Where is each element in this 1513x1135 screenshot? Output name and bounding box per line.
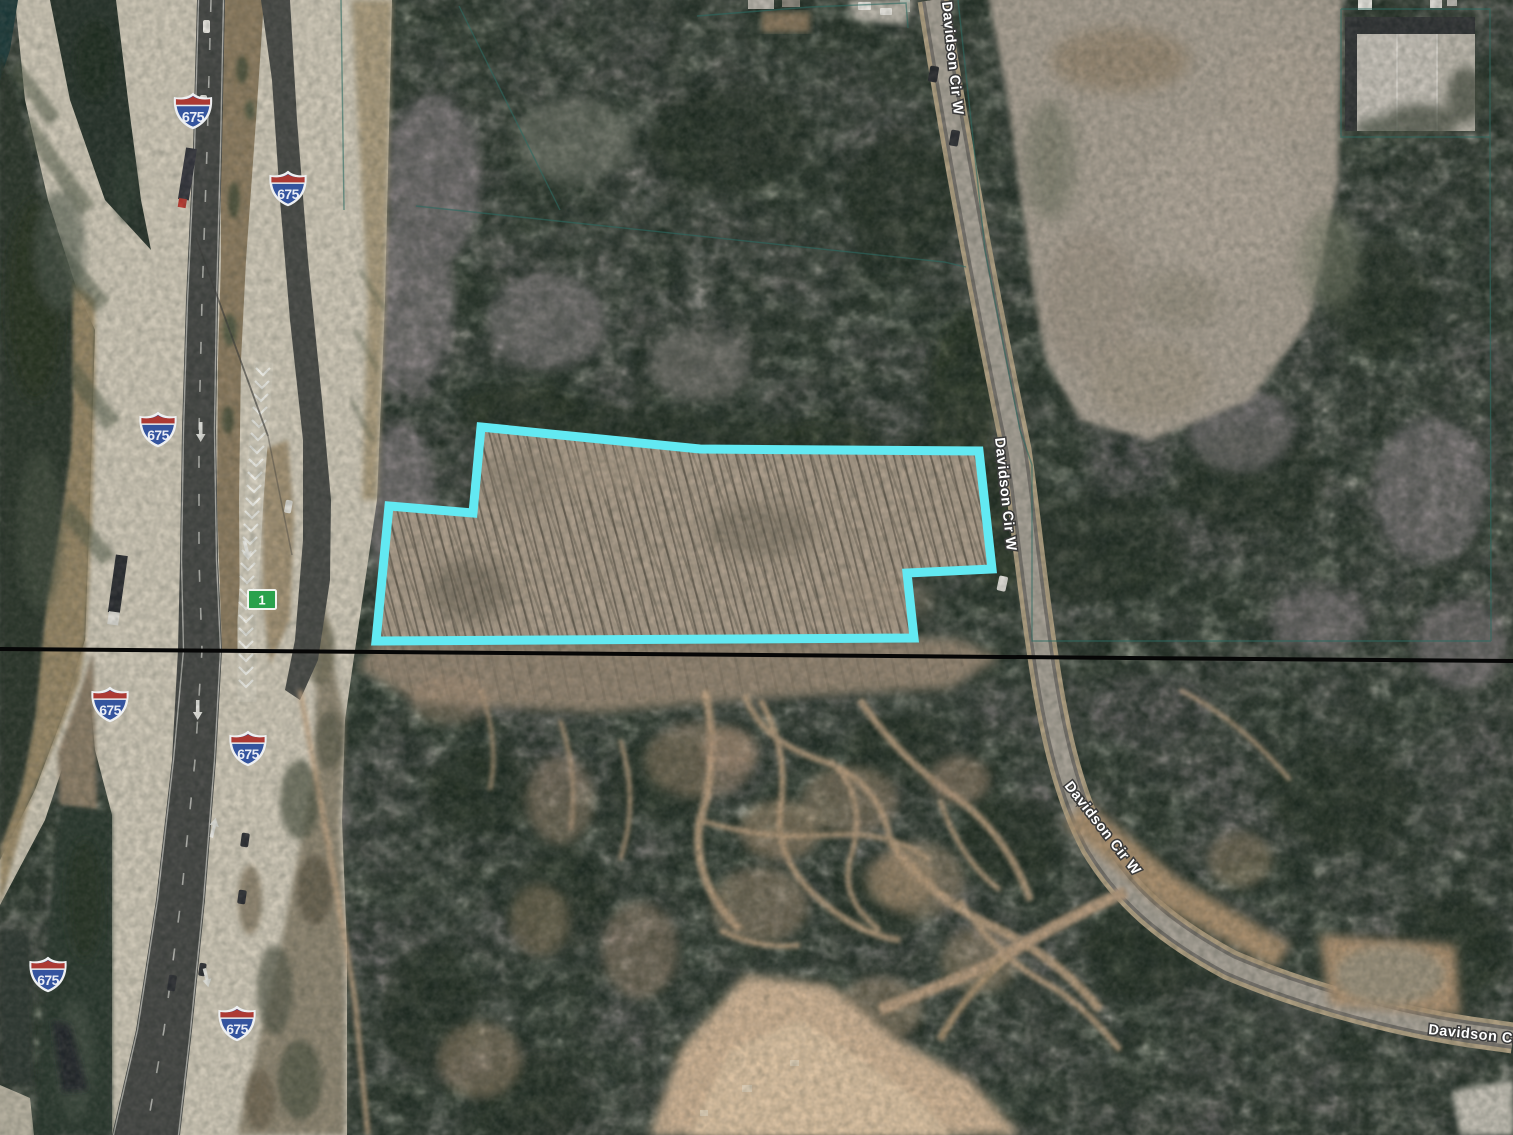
svg-text:1: 1 [258,593,265,608]
